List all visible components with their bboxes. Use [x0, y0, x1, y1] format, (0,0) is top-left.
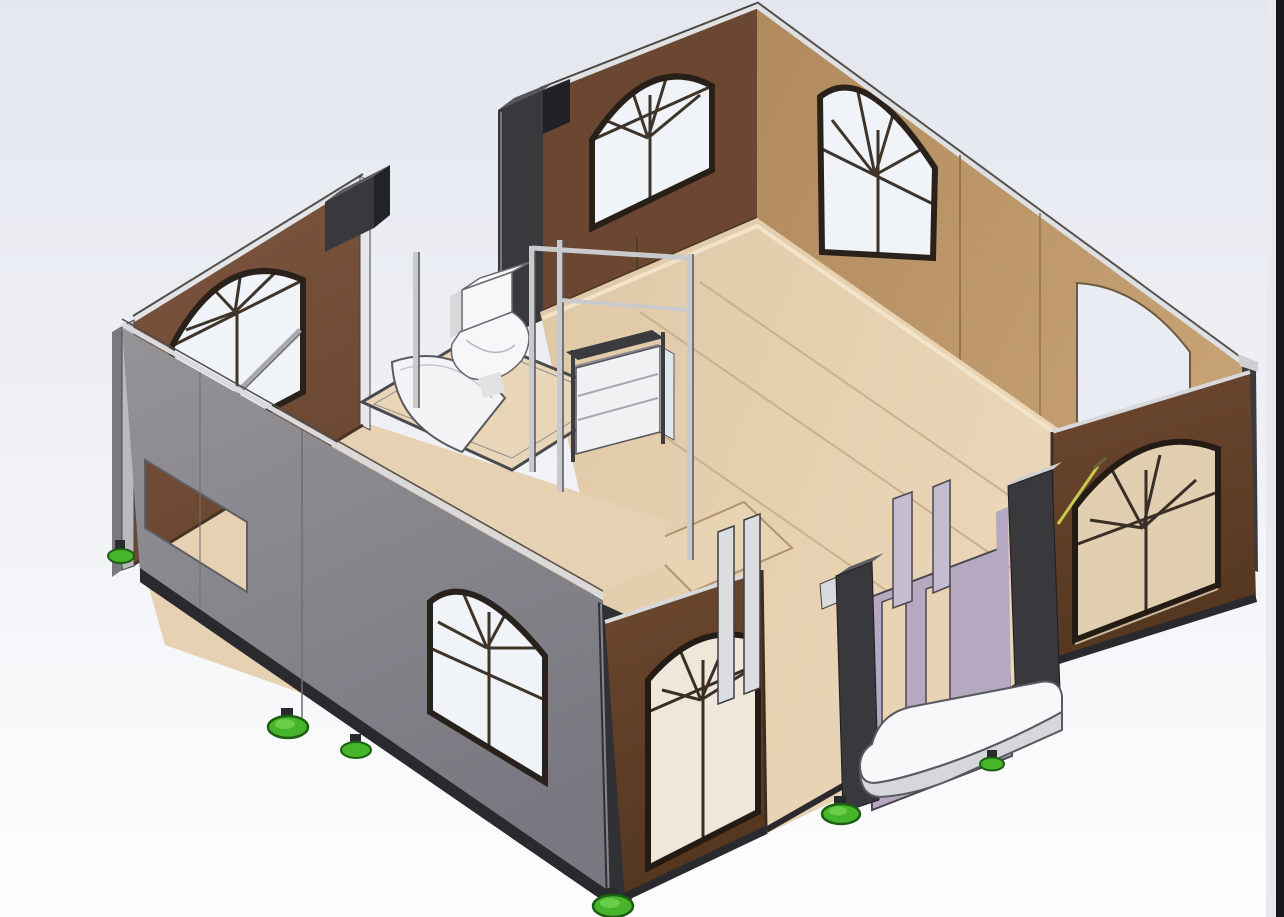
entrance-column-right[interactable] [1008, 470, 1060, 706]
panel-riser [933, 480, 950, 593]
panel-riser [893, 492, 912, 608]
door-jamb-post[interactable] [718, 526, 734, 704]
cad-viewport[interactable] [0, 0, 1284, 917]
end-wall-side [112, 326, 122, 577]
panel-slot [882, 593, 906, 727]
tank-side [450, 290, 462, 338]
right-dark-strip [1276, 0, 1284, 917]
door-jamb-post[interactable] [744, 514, 760, 694]
panel-slot [926, 581, 950, 709]
right-edge-highlight [1266, 0, 1276, 917]
